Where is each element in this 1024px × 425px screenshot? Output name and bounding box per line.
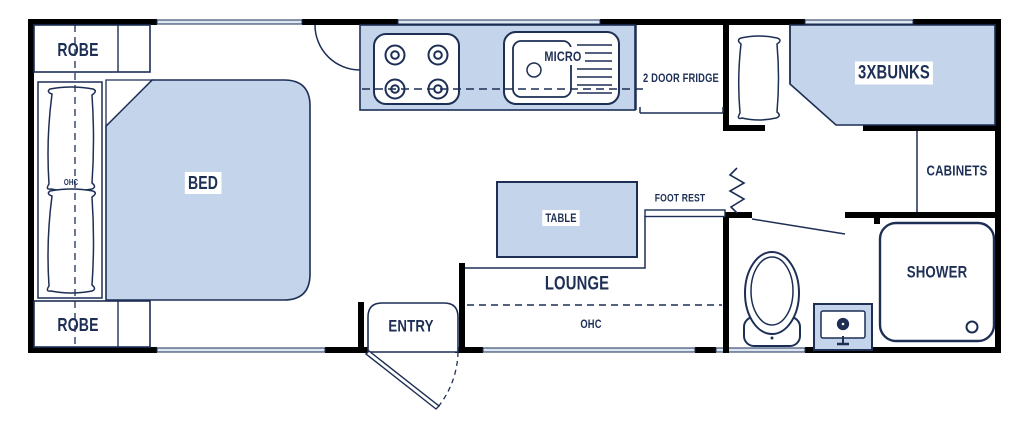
bench-end-curve [315, 25, 360, 70]
label-fridge: 2 DOOR FRIDGE [643, 72, 719, 84]
concertina-door-icon [730, 168, 744, 213]
label-robe-top: ROBE [57, 41, 98, 59]
pillow-icon [738, 36, 780, 120]
foot-rest-bar [645, 210, 725, 217]
shower-tray-icon [880, 223, 994, 341]
label-ohc-over-bed: OHC [64, 179, 78, 187]
pillow-icon [47, 87, 95, 191]
kitchen [315, 25, 648, 110]
label-lounge: LOUNGE [545, 275, 609, 294]
bathroom [730, 168, 994, 350]
door-swing-arc [438, 352, 458, 407]
pillow-icon [47, 189, 95, 293]
label-shower: SHOWER [907, 264, 968, 281]
label-micro: MICRO [541, 47, 584, 65]
label-bunks: 3XBUNKS [855, 62, 933, 85]
label-robe-bottom: ROBE [57, 316, 98, 334]
bunk-room [738, 25, 995, 212]
label-foot-rest: FOOT REST [655, 194, 706, 205]
label-cabinets: CABINETS [926, 164, 987, 179]
label-table: TABLE [542, 210, 580, 226]
shower-drain [967, 322, 978, 333]
label-entry: ENTRY [388, 318, 433, 335]
door-leaf-icon [366, 351, 439, 409]
caravan-floorplan: ROBE ROBE BED OHC MICRO 2 DOOR FRIDGE 3X… [0, 0, 1024, 425]
label-ohc: OHC [580, 318, 601, 330]
fridge-bay [636, 25, 723, 113]
vanity-sink-icon [814, 304, 872, 350]
bathroom-door-leaf [752, 219, 845, 234]
toilet-icon [744, 252, 800, 346]
label-bed: BED [185, 172, 221, 194]
